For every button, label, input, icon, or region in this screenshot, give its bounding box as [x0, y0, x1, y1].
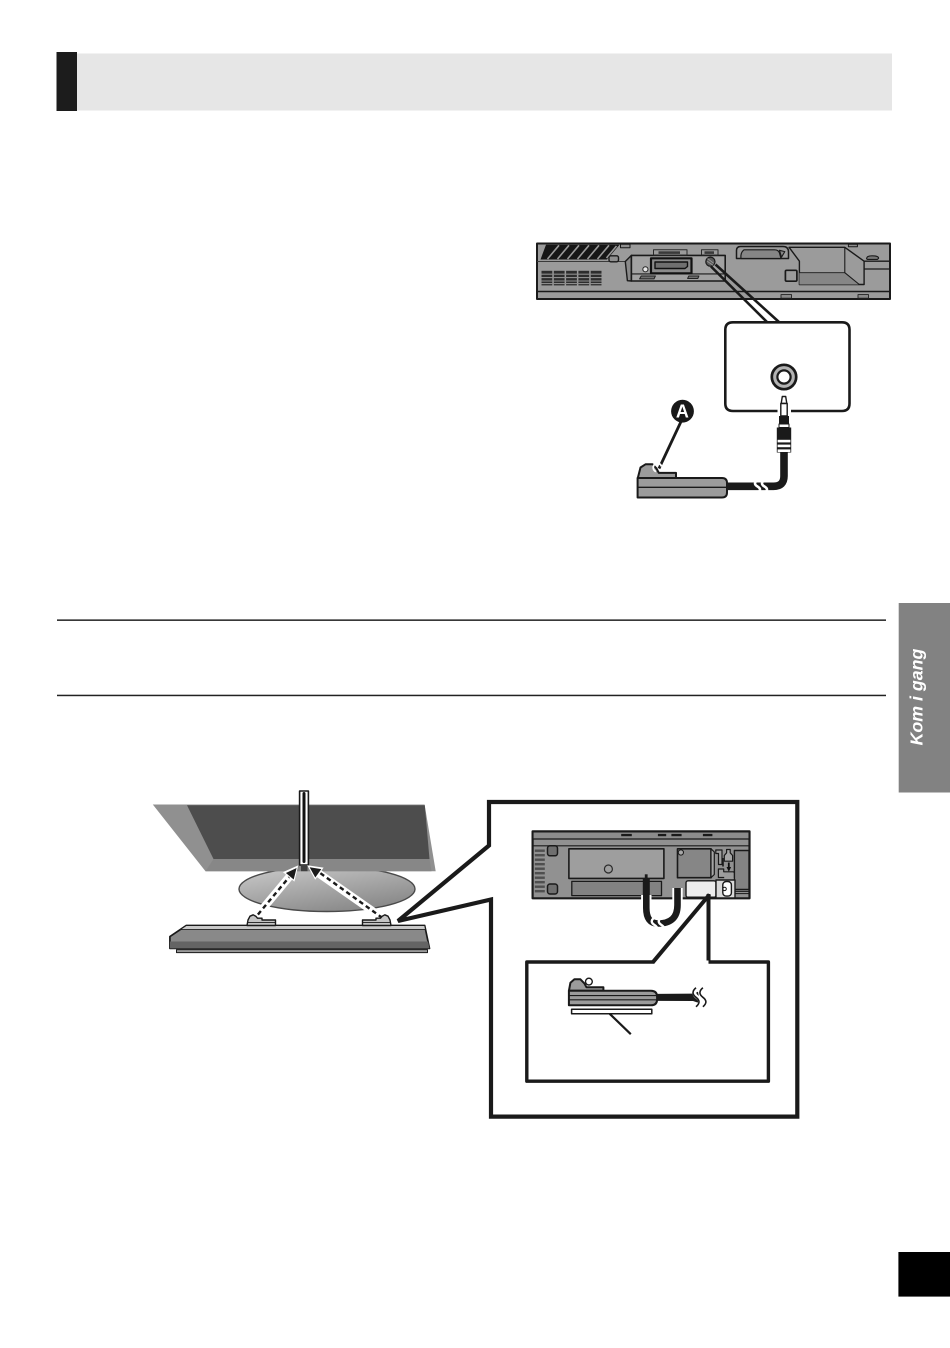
- svg-text:A: A: [676, 402, 689, 422]
- svg-text:Kom i gang: Kom i gang: [907, 648, 927, 745]
